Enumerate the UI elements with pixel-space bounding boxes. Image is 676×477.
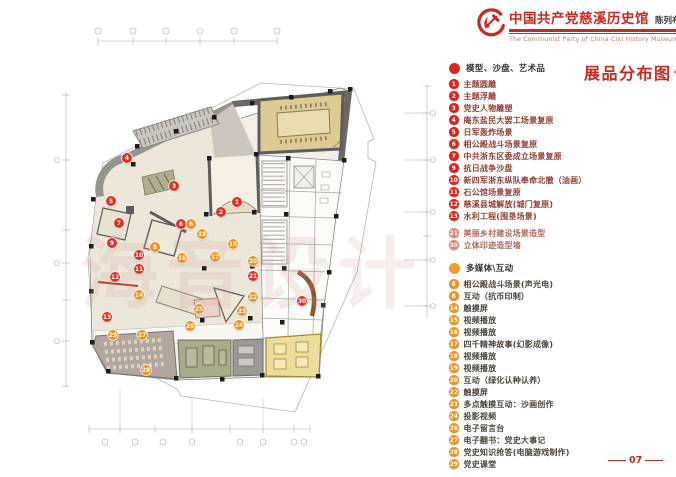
- legend-group-name: 多媒体\互动: [466, 262, 513, 274]
- legend-item-label: 庵东盐民大罢工场景复原: [464, 115, 554, 126]
- legend-item-number: 2: [449, 91, 459, 101]
- legend-item-2: 2主题浮雕: [449, 90, 599, 102]
- legend-item-14: 14触摸屏: [449, 302, 599, 314]
- header-rule-thick: [509, 29, 676, 32]
- legend-item-number: 4: [449, 115, 459, 125]
- legend-item-number: 6: [449, 139, 459, 149]
- legend-item-label: 水利工程(围垦场景): [464, 211, 537, 222]
- legend-item-22: 22触摸屏: [449, 386, 599, 398]
- yellow-office: [266, 334, 321, 377]
- legend-item-24: 24投影视频: [449, 410, 599, 422]
- legend-item-label: 相公殿战斗场景复原: [464, 139, 538, 150]
- legend-item-5: 5日军轰炸场景: [449, 126, 599, 138]
- legend-item-15: 15视频播放: [449, 314, 599, 326]
- plan-marker-orange-24: 24: [234, 320, 244, 330]
- legend-item-number: 26: [449, 423, 459, 433]
- legend-group-red: 模型、沙盘、艺术品1主题圆雕2主题浮雕3党史人物雕塑4庵东盐民大罢工场景复原5日…: [449, 62, 599, 251]
- legend-item-1: 1主题圆雕: [449, 78, 599, 90]
- classroom: [93, 331, 177, 379]
- legend-item-27: 27电子翻书：党史大事记: [449, 434, 599, 446]
- legend-group-header: 多媒体\互动: [449, 262, 599, 274]
- legend-item-4: 4庵东盐民大罢工场景复原: [449, 114, 599, 126]
- legend-item-7: 7中共浙东区委成立场景复原: [449, 150, 599, 162]
- plan-marker-red-30: 30: [297, 296, 307, 306]
- legend-item-label: 相公殿战斗场景(声光电): [464, 279, 554, 290]
- legend-item-label: 主题浮雕: [464, 91, 497, 102]
- plan-marker-red-11: 11: [134, 264, 144, 274]
- legend-item-26: 26电子留言台: [449, 422, 599, 434]
- plan-marker-red-21: 21: [248, 271, 258, 281]
- legend-item-number: 17: [449, 339, 459, 349]
- legend-item-number: 5: [449, 127, 459, 137]
- legend-item-number: 23: [449, 399, 459, 409]
- party-emblem-icon: [474, 7, 506, 39]
- plan-marker-orange-6: 6: [186, 219, 196, 229]
- legend-item-8: 8互动（抗币印制）: [449, 290, 599, 302]
- legend-item-number: 10: [449, 175, 459, 185]
- legend-item-label: 互动（抗币印制）: [464, 291, 530, 302]
- legend-item-label: 党史人物雕塑: [464, 103, 513, 114]
- legend-item-label: 互动（绿化认种认养）: [464, 375, 546, 386]
- legend-item-number: 28: [449, 447, 459, 457]
- legend-item-30: 30立体印迹造型墙: [449, 239, 599, 251]
- legend-item-19: 19视频播放: [449, 362, 599, 374]
- legend-item-number: 22: [449, 387, 459, 397]
- legend-item-label: 视频播放: [464, 315, 497, 326]
- legend-item-number: 15: [449, 315, 459, 325]
- legend-item-number: 18: [449, 351, 459, 361]
- legend-item-number: 9: [449, 163, 459, 173]
- plan-marker-red-3: 3: [169, 181, 179, 191]
- legend-item-label: 抗日战争沙盘: [464, 163, 513, 174]
- legend-item-label: 四千精神故事(幻影成像): [464, 339, 554, 350]
- legend-item-6: 6相公殿战斗场景复原: [449, 138, 599, 150]
- legend-item-number: 6: [449, 279, 459, 289]
- legend-item-number: 19: [449, 363, 459, 373]
- page-number-dash-right: [645, 460, 663, 462]
- plan-marker-red-4: 4: [122, 153, 132, 163]
- legend-item-21: 21美丽乡村建设场景造型: [449, 227, 599, 239]
- legend-item-18: 18视频播放: [449, 350, 599, 362]
- legend-item-label: 视频播放: [464, 351, 497, 362]
- legend-item-label: 美丽乡村建设场景造型: [464, 228, 546, 239]
- header-rule-thin: [509, 33, 676, 34]
- plan-marker-orange-25: 25: [194, 304, 204, 314]
- legend-item-label: 触摸屏: [464, 387, 489, 398]
- legend-item-label: 日军轰炸场景: [464, 127, 513, 138]
- main-hall: [209, 155, 259, 216]
- page-number-block: 07: [608, 455, 663, 466]
- legend-item-number: 27: [449, 435, 459, 445]
- plan-marker-red-7: 7: [114, 218, 124, 228]
- museum-title: 中国共产党慈溪历史馆: [509, 7, 649, 27]
- legend-group-orange: 多媒体\互动6相公殿战斗场景(声光电)8互动（抗币印制）14触摸屏15视频播放1…: [449, 262, 599, 470]
- page-number-dash-left: [608, 460, 626, 462]
- legend-item-number: 24: [449, 411, 459, 421]
- legend-item-number: 14: [449, 303, 459, 313]
- legend-group-dot-icon: [449, 263, 460, 274]
- legend-item-29: 29党史课堂: [449, 458, 599, 470]
- legend-item-10: 10新四军浙东纵队奉命北撤（油画）: [449, 174, 599, 186]
- header: 中国共产党慈溪历史馆 陈列布展设计施工方案 The Communist Part…: [474, 7, 670, 43]
- legend-item-label: 新四军浙东纵队奉命北撤（油画）: [464, 175, 587, 186]
- plan-marker-orange-23: 23: [237, 306, 247, 316]
- legend-item-28: 28党史知识抢答(电脑游戏制作): [449, 446, 599, 458]
- plan-marker-orange-20: 20: [248, 256, 258, 266]
- gray-office: [233, 339, 263, 376]
- plan-marker-orange-17: 17: [210, 252, 220, 262]
- legend-item-17: 17四千精神故事(幻影成像): [449, 338, 599, 350]
- plan-marker-orange-26: 26: [185, 321, 195, 331]
- plan-marker-red-2: 2: [216, 207, 226, 217]
- legend-item-13: 13水利工程(围垦场景): [449, 210, 599, 222]
- plan-marker-red-1: 1: [232, 197, 242, 207]
- plan-marker-orange-29: 29: [108, 330, 118, 340]
- legend-item-12: 12慈溪县城解放(城门复原): [449, 198, 599, 210]
- legend-item-3: 3党史人物雕塑: [449, 102, 599, 114]
- legend-item-label: 投影视频: [464, 411, 497, 422]
- legend-item-number: 11: [449, 187, 459, 197]
- legend-item-label: 主题圆雕: [464, 79, 497, 90]
- legend-list: 模型、沙盘、艺术品1主题圆雕2主题浮雕3党史人物雕塑4庵东盐民大罢工场景复原5日…: [449, 62, 599, 470]
- legend-item-9: 9抗日战争沙盘: [449, 162, 599, 174]
- legend-item-label: 电子翻书：党史大事记: [464, 435, 546, 446]
- legend-item-16: 16视频播放: [449, 326, 599, 338]
- legend-item-label: 触摸屏: [464, 303, 489, 314]
- legend-item-label: 视频播放: [464, 327, 497, 338]
- legend-group-dot-icon: [449, 63, 460, 74]
- plan-marker-red-5: 5: [106, 196, 116, 206]
- legend-item-label: 电子留言台: [464, 423, 505, 434]
- plan-marker-orange-22: 22: [248, 292, 258, 302]
- legend-item-label: 多点触摸互动：沙画创作: [464, 399, 554, 410]
- document-subtitle: 陈列布展设计施工方案: [655, 14, 676, 26]
- plan-marker-orange-14: 14: [134, 290, 144, 300]
- legend-group-header: 模型、沙盘、艺术品: [449, 62, 599, 74]
- legend-item-6: 6相公殿战斗场景(声光电): [449, 278, 599, 290]
- legend-item-label: 党史知识抢答(电脑游戏制作): [464, 447, 570, 458]
- legend-item-number: 7: [449, 151, 459, 161]
- legend-item-label: 中共浙东区委成立场景复原: [464, 151, 562, 162]
- legend-item-label: 立体印迹造型墙: [464, 240, 521, 251]
- legend-item-number: 30: [449, 240, 459, 250]
- legend-item-11: 11石公馆场景复原: [449, 186, 599, 198]
- conference-room: [259, 93, 343, 153]
- plan-marker-red-12: 12: [110, 272, 120, 282]
- legend-item-number: 12: [449, 199, 459, 209]
- plan-marker-orange-8: 8: [150, 242, 160, 252]
- plan-marker-orange-27: 27: [137, 330, 147, 340]
- legend-item-number: 8: [449, 291, 459, 301]
- legend-item-number: 13: [449, 211, 459, 221]
- legend-item-label: 慈溪县城解放(城门复原): [464, 199, 554, 210]
- legend-item-number: 16: [449, 327, 459, 337]
- legend-item-label: 党史课堂: [464, 459, 497, 470]
- legend-item-number: 3: [449, 103, 459, 113]
- legend-item-23: 23多点触摸互动：沙画创作: [449, 398, 599, 410]
- legend-item-number: 21: [449, 228, 459, 238]
- plan-marker-orange-18: 18: [197, 229, 207, 239]
- museum-title-english: The Communist Party of China Cixi Histor…: [509, 36, 676, 43]
- plan-marker-red-6: 6: [176, 219, 186, 229]
- legend-item-20: 20互动（绿化认种认养）: [449, 374, 599, 386]
- legend-item-number: 29: [449, 459, 459, 469]
- legend-item-label: 石公馆场景复原: [464, 187, 521, 198]
- legend-item-label: 视频播放: [464, 363, 497, 374]
- plan-marker-orange-15: 15: [228, 239, 238, 249]
- plan-marker-orange-16: 16: [177, 253, 187, 263]
- plan-marker-red-10: 10: [134, 250, 144, 260]
- page-number: 07: [629, 455, 642, 466]
- plan-marker-orange-28: 28: [141, 365, 151, 375]
- plan-marker-red-9: 9: [107, 238, 117, 248]
- legend-item-number: 20: [449, 375, 459, 385]
- legend-group-name: 模型、沙盘、艺术品: [466, 62, 545, 74]
- plan-marker-red-13: 13: [102, 312, 112, 322]
- legend-item-number: 1: [449, 79, 459, 89]
